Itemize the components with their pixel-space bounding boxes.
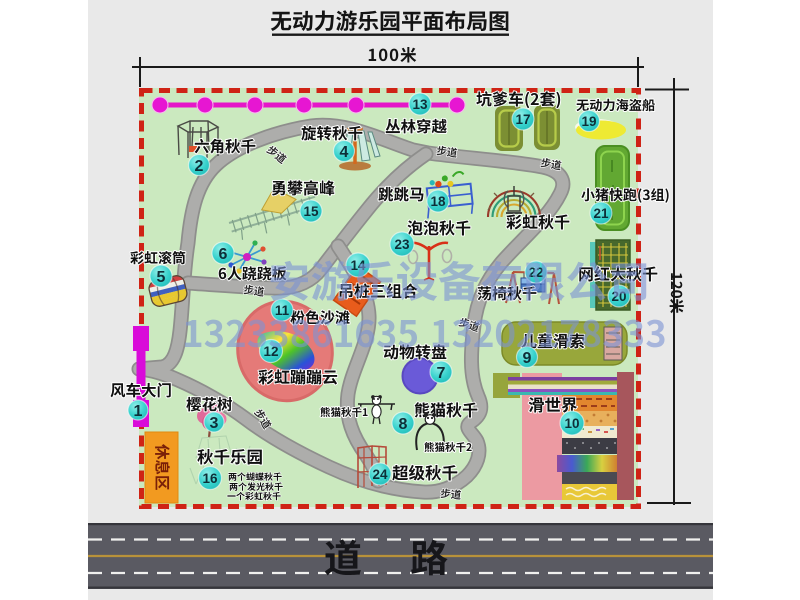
svg-text:9: 9 bbox=[523, 350, 532, 367]
svg-text:23: 23 bbox=[394, 237, 410, 252]
svg-text:19: 19 bbox=[581, 114, 596, 129]
svg-text:11: 11 bbox=[275, 303, 290, 318]
svg-text:1: 1 bbox=[134, 403, 143, 420]
svg-text:2: 2 bbox=[195, 158, 204, 175]
svg-text:3: 3 bbox=[210, 415, 219, 432]
svg-text:17: 17 bbox=[515, 112, 530, 127]
svg-text:6: 6 bbox=[219, 246, 228, 263]
svg-text:24: 24 bbox=[372, 467, 388, 482]
svg-text:15: 15 bbox=[303, 204, 319, 219]
svg-text:7: 7 bbox=[437, 365, 446, 382]
svg-text:8: 8 bbox=[399, 416, 408, 433]
svg-text:13: 13 bbox=[412, 97, 428, 112]
svg-text:21: 21 bbox=[593, 206, 609, 221]
svg-text:18: 18 bbox=[430, 194, 446, 209]
svg-text:16: 16 bbox=[202, 471, 218, 486]
svg-text:10: 10 bbox=[564, 416, 579, 431]
svg-text:4: 4 bbox=[340, 144, 349, 161]
svg-text:5: 5 bbox=[157, 269, 166, 286]
